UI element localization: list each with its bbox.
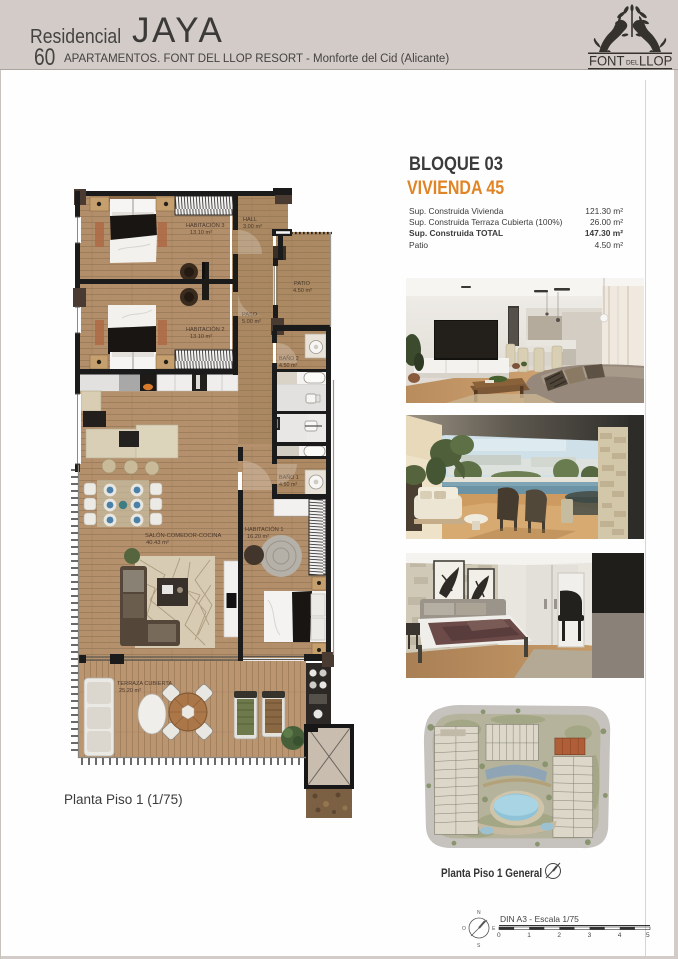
svg-text:2: 2 — [557, 932, 561, 938]
svg-text:3.00 m²: 3.00 m² — [243, 224, 262, 230]
svg-text:HALL: HALL — [243, 217, 257, 223]
svg-text:O: O — [462, 926, 466, 932]
svg-text:40.43 m²: 40.43 m² — [146, 540, 169, 546]
svg-text:3: 3 — [588, 932, 592, 938]
svg-text:HABITACIÓN 2: HABITACIÓN 2 — [186, 326, 224, 333]
svg-text:LLOP: LLOP — [639, 53, 672, 69]
svg-text:16.20 m²: 16.20 m² — [247, 534, 269, 540]
svg-text:1: 1 — [527, 932, 531, 938]
svg-text:5: 5 — [646, 932, 650, 938]
svg-text:4.50 m²: 4.50 m² — [279, 363, 297, 369]
svg-text:E: E — [492, 926, 496, 932]
svg-text:13.10 m²: 13.10 m² — [190, 334, 212, 340]
svg-text:N: N — [477, 910, 481, 916]
svg-text:5.00 m²: 5.00 m² — [242, 319, 261, 325]
svg-text:DEL: DEL — [626, 60, 639, 67]
svg-text:HABITACIÓN 1: HABITACIÓN 1 — [245, 526, 283, 533]
svg-text:0: 0 — [497, 932, 501, 938]
svg-text:S: S — [477, 943, 481, 948]
svg-text:13.10 m²: 13.10 m² — [190, 230, 212, 236]
svg-text:PATIO: PATIO — [294, 281, 311, 287]
svg-text:25.20 m²: 25.20 m² — [119, 688, 141, 694]
svg-text:HABITACIÓN 3: HABITACIÓN 3 — [186, 222, 224, 229]
svg-text:4.50 m²: 4.50 m² — [293, 288, 312, 294]
svg-text:FONT: FONT — [589, 53, 624, 69]
svg-text:4: 4 — [618, 932, 622, 938]
svg-text:SALÓN-COMEDOR-COCINA: SALÓN-COMEDOR-COCINA — [145, 532, 221, 539]
svg-text:TERRAZA CUBIERTA: TERRAZA CUBIERTA — [117, 681, 172, 687]
